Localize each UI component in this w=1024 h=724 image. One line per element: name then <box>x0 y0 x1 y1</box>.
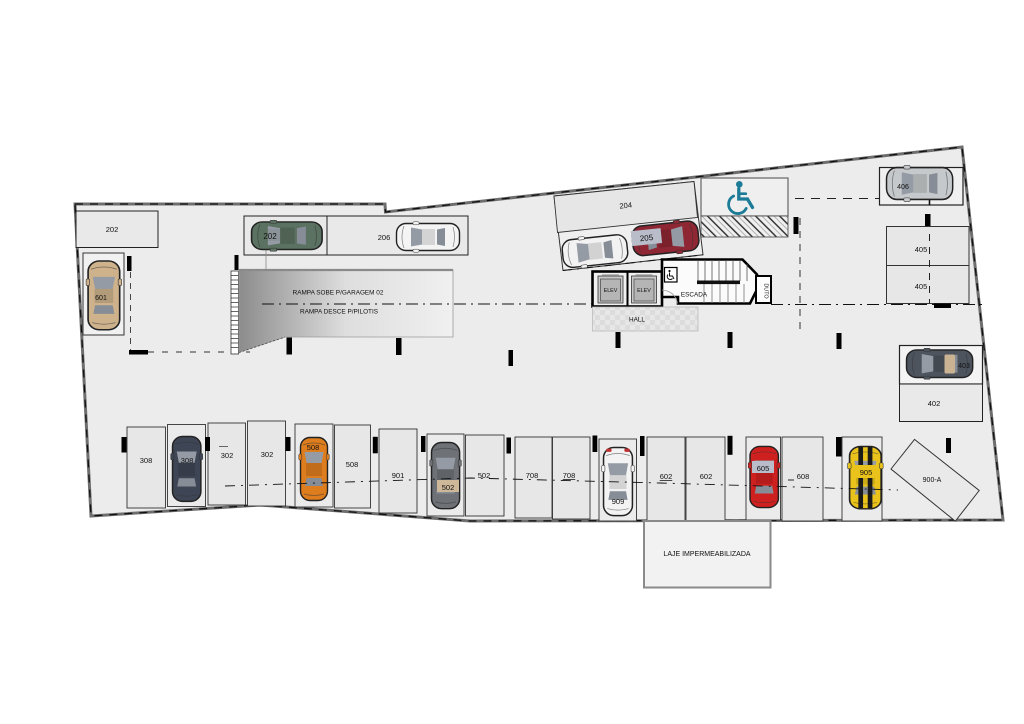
svg-text:ELEV: ELEV <box>637 288 651 294</box>
svg-text:202: 202 <box>263 232 277 241</box>
svg-text:502: 502 <box>442 483 455 492</box>
svg-text:ESCADA: ESCADA <box>681 292 708 299</box>
svg-text:605: 605 <box>757 464 770 473</box>
svg-text:HALL: HALL <box>629 317 645 324</box>
svg-text:DUTO: DUTO <box>763 283 769 298</box>
svg-text:708: 708 <box>563 471 576 480</box>
svg-text:LAJE IMPERMEABILIZADA: LAJE IMPERMEABILIZADA <box>663 551 750 558</box>
svg-text:708: 708 <box>526 471 539 480</box>
svg-text:508: 508 <box>307 443 320 452</box>
svg-text:202: 202 <box>106 225 119 234</box>
svg-text:406: 406 <box>897 184 909 191</box>
svg-text:909: 909 <box>612 497 625 506</box>
svg-text:205: 205 <box>639 233 654 243</box>
svg-text:502: 502 <box>478 471 491 480</box>
svg-text:901: 901 <box>392 471 405 480</box>
svg-text:905: 905 <box>860 468 873 477</box>
svg-text:308: 308 <box>140 456 153 465</box>
svg-text:508: 508 <box>346 460 359 469</box>
svg-text:206: 206 <box>378 233 391 242</box>
svg-text:608: 608 <box>797 472 810 481</box>
svg-text:RAMPA DESCE P/PILOTIS: RAMPA DESCE P/PILOTIS <box>300 309 378 316</box>
svg-text:403: 403 <box>958 363 970 370</box>
svg-text:RAMPA SOBE P/GARAGEM 02: RAMPA SOBE P/GARAGEM 02 <box>293 290 384 297</box>
svg-text:601: 601 <box>95 295 107 302</box>
svg-text:204: 204 <box>619 200 632 210</box>
svg-text:405: 405 <box>915 245 928 254</box>
svg-text:405: 405 <box>915 282 928 291</box>
svg-text:900-A: 900-A <box>923 477 942 484</box>
svg-text:308: 308 <box>181 456 194 465</box>
svg-text:ELEV: ELEV <box>604 288 618 294</box>
svg-text:602: 602 <box>660 472 673 481</box>
svg-text:402: 402 <box>928 399 941 408</box>
svg-text:602: 602 <box>700 472 713 481</box>
svg-text:302: 302 <box>261 450 274 459</box>
svg-text:302: 302 <box>221 451 234 460</box>
